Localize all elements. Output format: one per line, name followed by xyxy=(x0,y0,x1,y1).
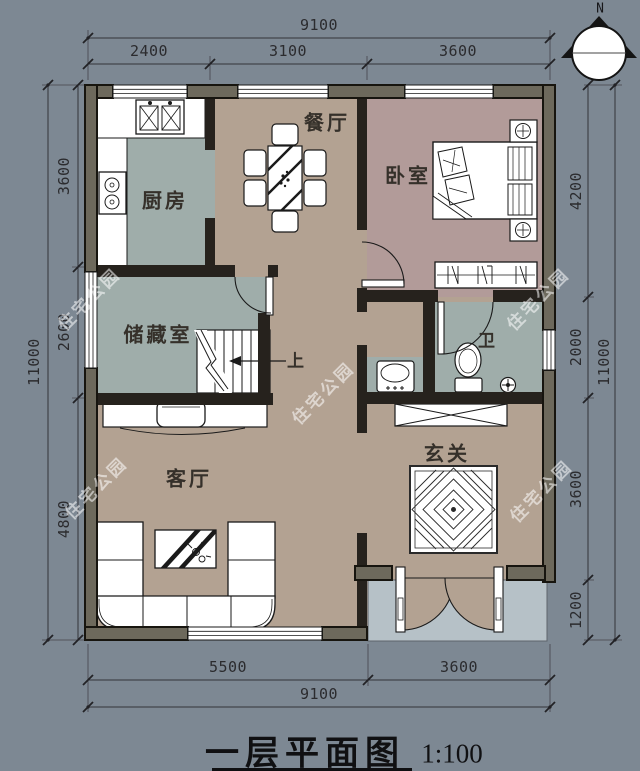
kitchen-stove xyxy=(99,172,126,214)
dim-bottom-seg2: 3600 xyxy=(440,658,478,676)
washbasin xyxy=(377,361,414,392)
dim-top-seg1: 2400 xyxy=(130,42,168,60)
drawing-scale: 1:100 xyxy=(421,739,483,770)
dim-right-seg4: 1200 xyxy=(567,591,585,629)
dim-top-seg2: 3100 xyxy=(269,42,307,60)
dim-left-overall: 11000 xyxy=(25,338,43,386)
north-compass-icon xyxy=(561,16,637,80)
dim-left-seg1: 3600 xyxy=(55,157,73,195)
room-label-dining: 餐厅 xyxy=(304,107,350,136)
dim-bottom-overall: 9100 xyxy=(300,685,338,703)
dim-top-overall: 9100 xyxy=(300,16,338,34)
room-label-storage: 储藏室 xyxy=(124,319,193,348)
room-label-bedroom: 卧室 xyxy=(385,160,431,189)
dim-bottom-seg1: 5500 xyxy=(209,658,247,676)
dim-top-seg3: 3600 xyxy=(439,42,477,60)
dim-right-overall: 11000 xyxy=(595,338,613,386)
stairs-up-label: 上 xyxy=(287,347,305,372)
room-label-entry: 玄关 xyxy=(424,438,470,467)
kitchen-sink xyxy=(136,100,184,134)
entry-rug xyxy=(410,466,497,553)
room-label-bath: 卫 xyxy=(478,327,496,352)
drawing-title: 一层平面图 xyxy=(205,726,405,771)
shoe-cabinet xyxy=(395,404,507,426)
dim-right-seg1: 4200 xyxy=(567,172,585,210)
dim-right-seg2: 2000 xyxy=(567,328,585,366)
room-label-kitchen: 厨房 xyxy=(142,185,188,214)
north-label: N xyxy=(596,2,604,17)
room-label-living: 客厅 xyxy=(166,463,212,492)
wardrobe xyxy=(435,262,537,288)
floor-plan-page: N 厨房 餐厅 卧室 储藏室 卫 客厅 玄关 上 9100 2400 3100 … xyxy=(0,0,640,771)
bed xyxy=(433,142,537,219)
